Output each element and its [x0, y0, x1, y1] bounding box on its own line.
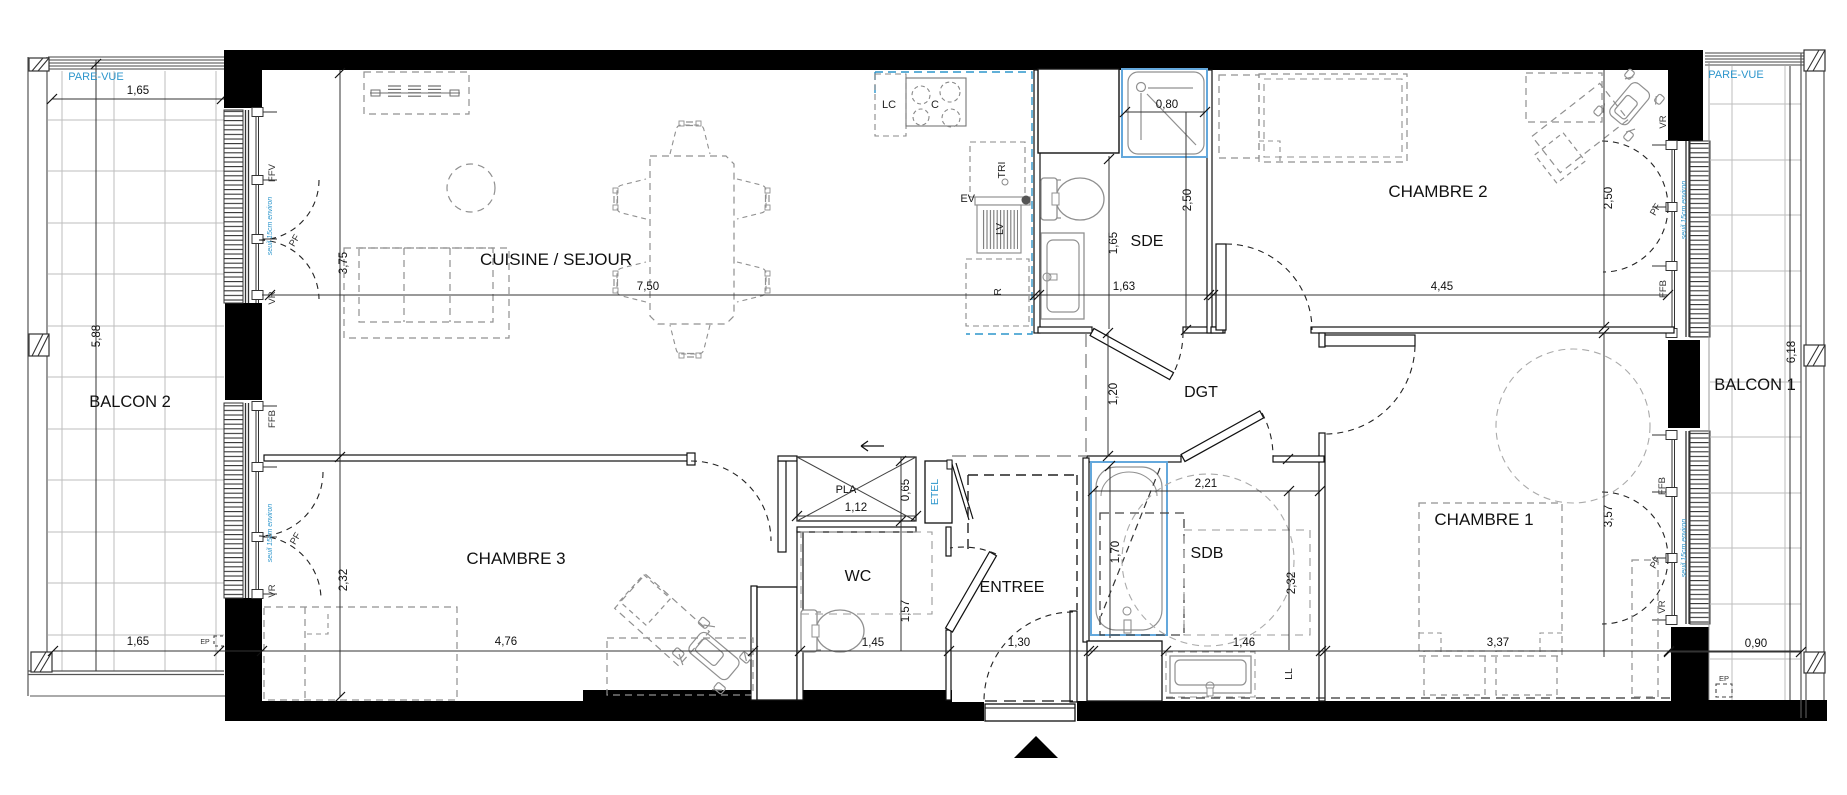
svg-text:LC: LC	[882, 99, 896, 111]
svg-text:ENTREE: ENTREE	[980, 579, 1045, 596]
svg-text:ETEL: ETEL	[929, 479, 941, 505]
svg-text:LL: LL	[1283, 668, 1295, 680]
svg-text:4,45: 4,45	[1431, 281, 1453, 293]
svg-text:CUISINE / SEJOUR: CUISINE / SEJOUR	[480, 250, 632, 269]
svg-text:0,65: 0,65	[900, 479, 912, 501]
svg-text:3,57: 3,57	[1603, 505, 1615, 527]
svg-text:C: C	[931, 99, 939, 111]
svg-text:1,70: 1,70	[1110, 541, 1122, 563]
svg-text:PLA: PLA	[836, 484, 857, 496]
svg-text:4,76: 4,76	[495, 636, 517, 648]
svg-text:PARE-VUE: PARE-VUE	[1708, 69, 1763, 81]
svg-text:7,50: 7,50	[637, 281, 659, 293]
svg-text:2,21: 2,21	[1195, 478, 1217, 490]
svg-text:1,12: 1,12	[845, 502, 867, 514]
svg-text:DGT: DGT	[1184, 384, 1218, 401]
svg-text:5,88: 5,88	[91, 325, 103, 347]
svg-text:seuil 15cm environ: seuil 15cm environ	[1681, 181, 1688, 239]
svg-text:1,65: 1,65	[127, 85, 149, 97]
svg-text:1,57: 1,57	[900, 600, 912, 622]
svg-text:VR: VR	[1658, 115, 1669, 128]
svg-text:1,65: 1,65	[1108, 232, 1120, 254]
svg-text:SDB: SDB	[1191, 545, 1224, 562]
svg-text:CHAMBRE 1: CHAMBRE 1	[1434, 510, 1533, 529]
svg-text:VR: VR	[1657, 600, 1668, 613]
svg-text:PARE-VUE: PARE-VUE	[68, 71, 123, 83]
svg-text:CHAMBRE 3: CHAMBRE 3	[466, 549, 565, 568]
svg-text:2,32: 2,32	[1286, 572, 1298, 594]
svg-text:3,75: 3,75	[338, 252, 350, 274]
svg-text:1,45: 1,45	[862, 637, 884, 649]
svg-text:EP: EP	[200, 639, 210, 646]
svg-text:6,18: 6,18	[1786, 341, 1798, 363]
svg-text:EP: EP	[1719, 674, 1729, 683]
svg-text:1,20: 1,20	[1108, 383, 1120, 405]
svg-text:EV: EV	[960, 193, 975, 205]
svg-text:2,50: 2,50	[1182, 189, 1194, 211]
svg-text:BALCON 2: BALCON 2	[89, 393, 171, 411]
svg-text:FFB: FFB	[1657, 477, 1668, 495]
svg-text:1,63: 1,63	[1113, 281, 1135, 293]
svg-text:FFV: FFV	[267, 163, 278, 182]
svg-text:BALCON 1: BALCON 1	[1714, 376, 1796, 394]
svg-text:2,50: 2,50	[1603, 187, 1615, 209]
svg-text:1,30: 1,30	[1008, 637, 1030, 649]
svg-text:0,80: 0,80	[1156, 99, 1178, 111]
svg-text:VR: VR	[267, 584, 278, 597]
svg-text:TRI: TRI	[996, 162, 1008, 179]
svg-text:seuil 15cm environ: seuil 15cm environ	[267, 197, 274, 255]
svg-text:LV: LV	[994, 223, 1006, 235]
svg-text:WC: WC	[845, 568, 872, 585]
svg-text:seuil 15cm environ: seuil 15cm environ	[1681, 519, 1688, 577]
svg-text:SDE: SDE	[1131, 233, 1164, 250]
svg-text:0,90: 0,90	[1745, 638, 1767, 650]
svg-text:3,37: 3,37	[1487, 637, 1509, 649]
svg-text:2,32: 2,32	[338, 569, 350, 591]
svg-text:seuil 15cm environ: seuil 15cm environ	[267, 504, 274, 562]
svg-text:FFB: FFB	[267, 410, 278, 428]
svg-text:1,46: 1,46	[1233, 637, 1255, 649]
svg-text:CHAMBRE 2: CHAMBRE 2	[1388, 182, 1487, 201]
svg-text:1,65: 1,65	[127, 636, 149, 648]
